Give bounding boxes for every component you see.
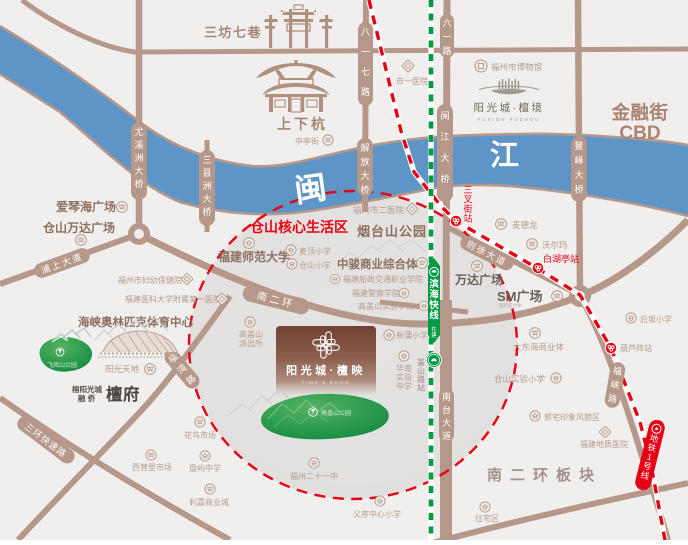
svg-text:江: 江	[490, 139, 519, 172]
svg-text:郭宅印象风貌区: 郭宅印象风貌区	[544, 412, 600, 422]
svg-text:六一路: 六一路	[442, 17, 451, 56]
svg-text:福州市妇幼保健院: 福州市妇幼保健院	[118, 275, 182, 285]
svg-text:麦顶小学: 麦顶小学	[299, 246, 331, 256]
svg-text:烟台山公园: 烟台山公园	[357, 224, 427, 239]
svg-text:盘屿中学: 盘屿中学	[189, 463, 221, 473]
svg-text:飞凤山公园: 飞凤山公园	[47, 361, 77, 369]
svg-text:福州市博物馆: 福州市博物馆	[491, 62, 542, 72]
svg-text:阳光天地: 阳光天地	[105, 364, 140, 374]
svg-text:中学: 中学	[396, 381, 412, 391]
svg-text:爱琴海广场: 爱琴海广场	[56, 199, 116, 214]
svg-text:福州市二医院: 福州市二医院	[353, 205, 405, 215]
svg-text:福建师范大学: 福建师范大学	[217, 249, 290, 264]
svg-text:福建警察学院: 福建警察学院	[352, 288, 400, 298]
svg-text:SM广场: SM广场	[497, 289, 543, 304]
svg-text:万达广场: 万达广场	[454, 272, 503, 287]
svg-text:尤溪洲大桥: 尤溪洲大桥	[134, 126, 143, 189]
svg-text:仓山核心生活区: 仓山核心生活区	[249, 219, 348, 235]
svg-text:阳光城·檀境: 阳光城·檀境	[474, 101, 545, 114]
svg-text:在建: 在建	[431, 325, 437, 339]
svg-text:榕阳光城: 榕阳光城	[72, 384, 102, 394]
svg-text:后坂小学: 后坂小学	[640, 314, 672, 324]
svg-text:仓山实验小学: 仓山实验小学	[494, 374, 546, 384]
svg-text:三叉街站: 三叉街站	[463, 185, 472, 224]
svg-text:福建船政交通职业学院: 福建船政交通职业学院	[343, 274, 423, 284]
svg-text:盖山路站: 盖山路站	[417, 357, 425, 393]
svg-text:TIME'S ECHO: TIME'S ECHO	[302, 380, 351, 385]
svg-text:新蒲小学: 新蒲小学	[396, 330, 428, 340]
svg-text:FUSION FUZHOU: FUSION FUZHOU	[478, 117, 541, 122]
svg-text:葫芦阵站: 葫芦阵站	[620, 343, 652, 353]
svg-text:沃尔玛: 沃尔玛	[542, 240, 568, 250]
svg-text:仓山小学: 仓山小学	[299, 260, 331, 270]
svg-text:高盖山实验学校: 高盖山实验学校	[358, 301, 414, 311]
svg-text:福州二十一中: 福州二十一中	[290, 471, 338, 481]
svg-text:上下杭: 上下杭	[277, 116, 328, 132]
svg-text:海峡奥林匹克体育中心: 海峡奥林匹克体育中心	[78, 315, 193, 329]
svg-text:西营里市场: 西营里市场	[132, 462, 172, 472]
svg-text:市一医院: 市一医院	[396, 76, 428, 86]
svg-text:融 侨: 融 侨	[78, 393, 96, 403]
svg-text:福建医科大学附属第一医院: 福建医科大学附属第一医院	[125, 294, 221, 304]
svg-text:高盖山: 高盖山	[239, 329, 263, 339]
svg-text:中骏商业综合体: 中骏商业综合体	[337, 257, 418, 271]
svg-text:华南: 华南	[396, 363, 412, 373]
svg-text:福建地质医院: 福建地质医院	[580, 439, 628, 449]
svg-text:大东海商业体: 大东海商业体	[513, 342, 565, 352]
svg-text:派出所: 派出所	[239, 338, 263, 348]
svg-text:南二环板块: 南二环板块	[487, 466, 602, 484]
svg-text:城市综合体: 城市综合体	[499, 302, 522, 309]
svg-text:高盖山公园: 高盖山公园	[321, 409, 351, 417]
svg-text:花鸟市场: 花鸟市场	[184, 430, 216, 440]
svg-text:三县洲大桥: 三县洲大桥	[202, 155, 211, 217]
svg-text:白湖亭站: 白湖亭站	[543, 253, 579, 264]
svg-text:CBD: CBD	[619, 123, 660, 144]
svg-text:三坊七巷: 三坊七巷	[204, 25, 262, 40]
svg-text:金融街: 金融街	[610, 102, 668, 123]
svg-text:中亭街: 中亭街	[295, 136, 319, 146]
svg-text:义序中心小学: 义序中心小学	[353, 509, 401, 519]
svg-text:滨海快线: 滨海快线	[429, 278, 439, 322]
svg-text:闽: 闽	[292, 169, 329, 209]
svg-text:利嘉商业城: 利嘉商业城	[189, 497, 229, 507]
svg-text:实验: 实验	[396, 372, 412, 382]
svg-text:阳光城·檀映: 阳光城·檀映	[286, 363, 366, 377]
svg-text:檀府: 檀府	[106, 384, 140, 404]
svg-text:住宅区: 住宅区	[475, 513, 499, 523]
svg-text:仓山万达广场: 仓山万达广场	[42, 220, 115, 235]
svg-text:麦德龙: 麦德龙	[512, 220, 538, 230]
